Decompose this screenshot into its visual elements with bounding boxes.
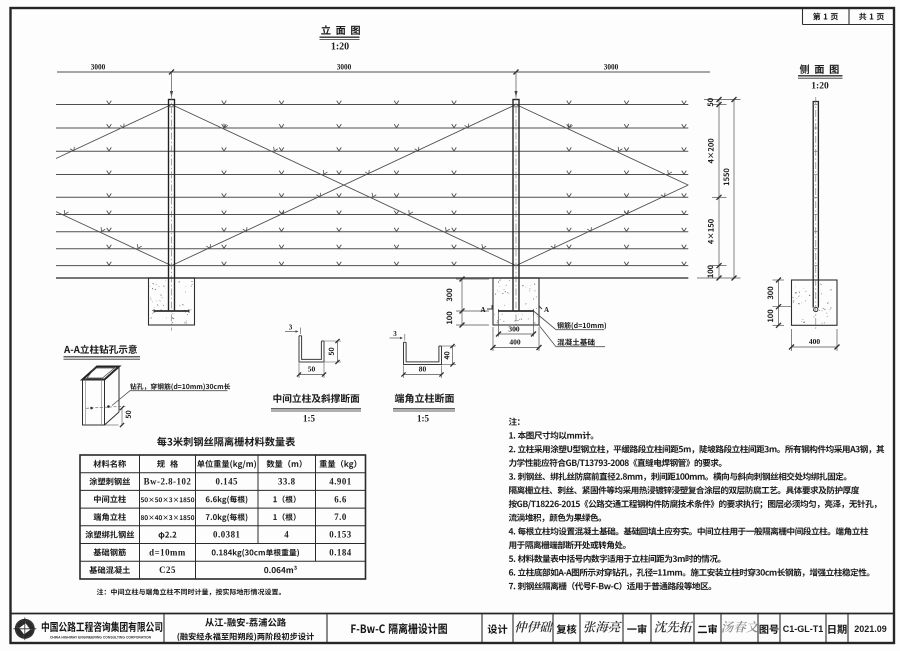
svg-text:50: 50	[308, 365, 316, 374]
svg-text:0.145: 0.145	[216, 477, 239, 487]
svg-text:3: 3	[289, 324, 293, 332]
svg-text:A: A	[480, 306, 485, 314]
svg-text:6.6: 6.6	[334, 494, 347, 504]
svg-text:3000: 3000	[337, 61, 352, 71]
svg-text:d=10mm: d=10mm	[149, 547, 186, 557]
svg-text:3000: 3000	[91, 61, 106, 71]
svg-text:0.153: 0.153	[329, 530, 352, 540]
svg-text:2021.09: 2021.09	[854, 624, 887, 634]
svg-text:4.901: 4.901	[329, 477, 351, 487]
svg-text:400: 400	[809, 337, 821, 346]
svg-text:1:5: 1:5	[417, 414, 429, 424]
svg-text:1:20: 1:20	[811, 82, 829, 92]
svg-text:1:20: 1:20	[331, 42, 349, 53]
svg-text:1:5: 1:5	[303, 414, 315, 424]
svg-text:0.0381: 0.0381	[213, 530, 240, 540]
svg-text:C25: C25	[159, 565, 176, 575]
svg-text:7.0: 7.0	[334, 512, 347, 522]
svg-text:Bw-2.8-102: Bw-2.8-102	[144, 477, 192, 487]
svg-text:C1-GL-T1: C1-GL-T1	[783, 624, 824, 634]
svg-text:4: 4	[284, 530, 289, 540]
svg-text:80: 80	[419, 365, 427, 374]
svg-text:300: 300	[508, 325, 520, 334]
svg-text:3: 3	[393, 330, 397, 338]
svg-text:CHINA HIGHWAY ENGINEERING CONS: CHINA HIGHWAY ENGINEERING CONSULTING COR…	[50, 636, 152, 640]
svg-text:33.8: 33.8	[278, 477, 296, 487]
svg-text:A: A	[544, 306, 549, 314]
svg-text:400: 400	[509, 338, 521, 347]
svg-text:3000: 3000	[604, 61, 619, 71]
svg-text:0.184: 0.184	[329, 547, 352, 557]
